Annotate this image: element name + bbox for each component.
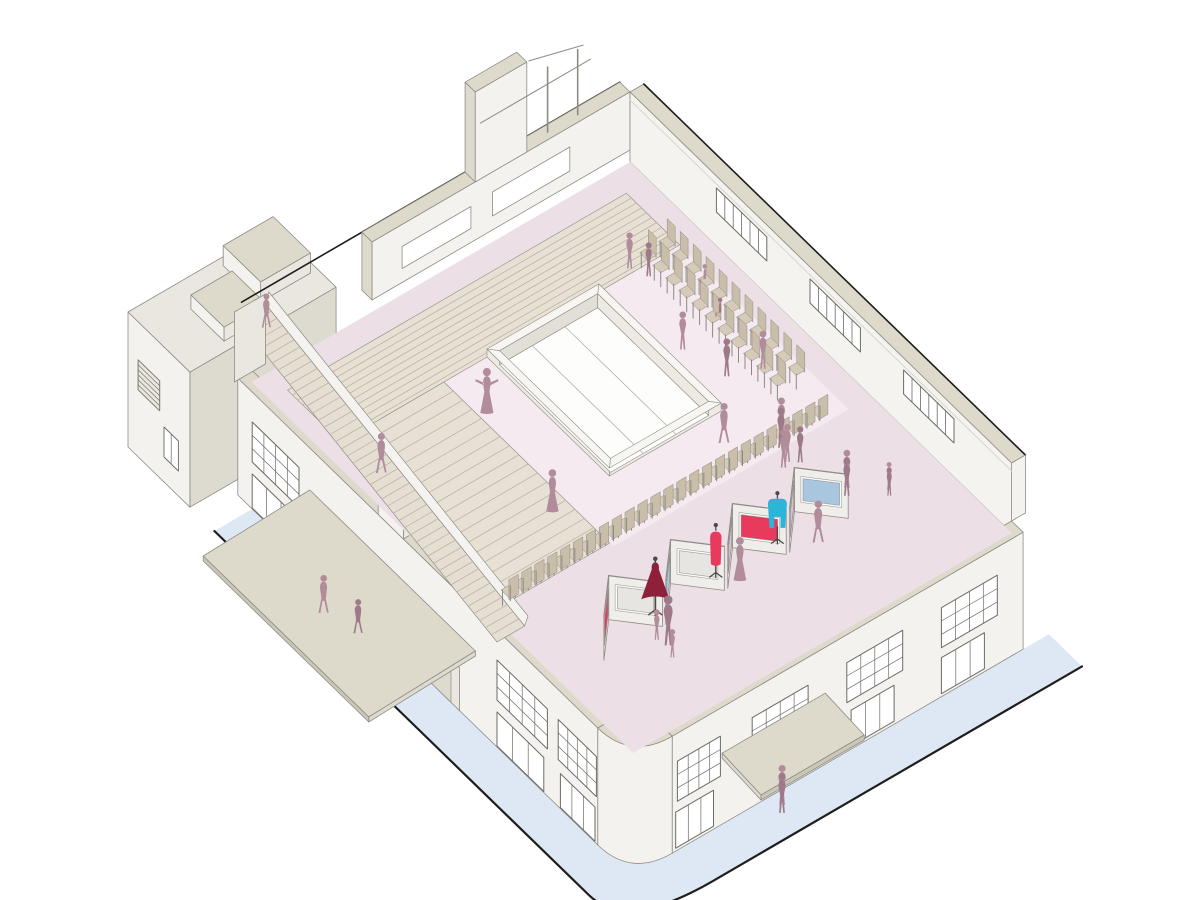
figure-head [887,462,892,467]
figure-head [777,408,784,415]
figure-head [654,609,660,615]
artwork [679,551,716,578]
figure-head [664,595,673,604]
figure-head [378,433,385,440]
roof-fin-end [465,82,475,182]
neck-knob [775,491,779,495]
figure-head [549,469,557,477]
figure-head [721,403,728,410]
antenna-line [529,45,584,61]
figure-head [723,338,730,345]
figure-head [887,468,892,473]
neck-knob [714,523,718,527]
figure-head [843,458,850,465]
figure-head [263,294,269,300]
figure-head [483,368,491,376]
figure-head [679,311,686,318]
neck-knob [653,556,658,561]
figure-head [736,537,744,545]
figure-head [778,773,785,780]
figure-head [797,426,803,432]
figure-head [626,232,632,238]
figure-head [718,298,722,302]
figure-head [355,599,361,605]
figure-head [779,765,786,772]
figure-head [703,264,707,268]
figure-head [760,331,767,338]
figure-head [815,501,822,508]
artwork [803,479,840,506]
ne-parapet-end-block [1012,455,1026,521]
figure-head [646,242,652,248]
cutaway-illustration-stage [0,0,1200,900]
figure-head [778,397,785,404]
figure-head [784,424,791,431]
figure-head [780,430,787,437]
figure-head [844,450,851,457]
garment [710,532,721,566]
nw-wall-end-cap [362,232,372,300]
figure-head [670,629,676,635]
building-cutaway-illustration [0,0,1200,900]
figure-head [320,575,327,582]
